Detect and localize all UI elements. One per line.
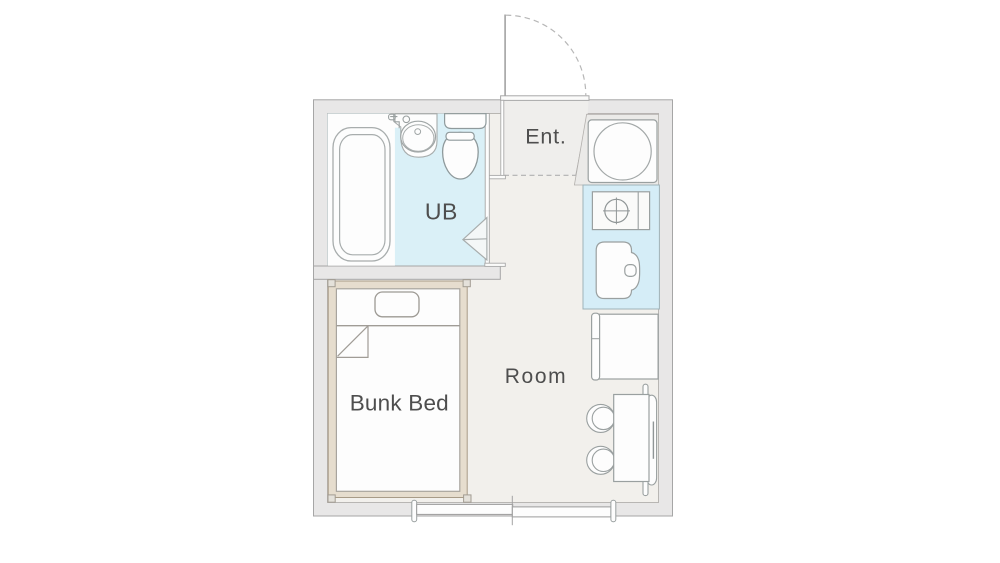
svg-text:UB: UB xyxy=(425,199,458,225)
svg-text:Ent.: Ent. xyxy=(525,125,566,149)
svg-text:Bunk Bed: Bunk Bed xyxy=(350,391,449,416)
svg-text:Room: Room xyxy=(505,365,567,388)
